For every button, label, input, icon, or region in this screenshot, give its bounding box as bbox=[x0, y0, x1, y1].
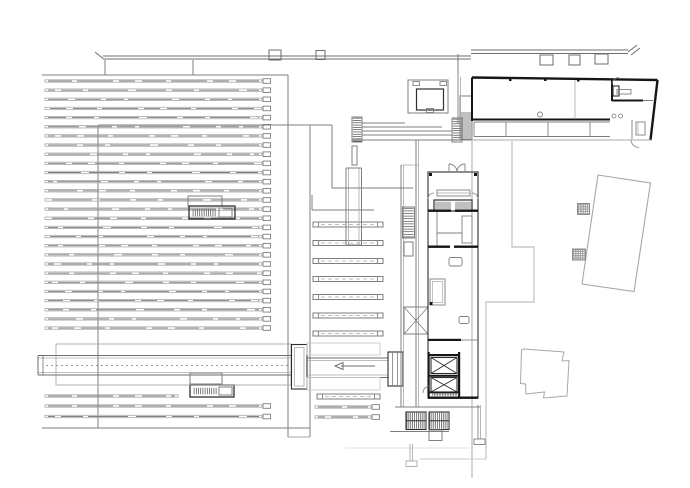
railway-track-end-bracket bbox=[263, 280, 271, 285]
railway-track-end-bracket bbox=[263, 289, 271, 294]
platform-bench-cap bbox=[313, 241, 319, 246]
column-marker bbox=[429, 173, 432, 176]
interior-wall bbox=[428, 339, 461, 341]
footbridge bbox=[38, 343, 403, 390]
canopy-edge-stepped bbox=[486, 141, 534, 459]
entrance-door-swing bbox=[449, 164, 457, 172]
railway-track-end-bracket bbox=[263, 207, 271, 212]
interior-wall bbox=[454, 246, 478, 248]
lamp-base bbox=[474, 439, 485, 445]
railway-track-end-bracket bbox=[263, 88, 271, 93]
platform-bench-cap bbox=[313, 313, 319, 318]
kiosk-fixture-inner bbox=[433, 282, 443, 303]
platform-bench-cap bbox=[313, 295, 319, 300]
core-wall bbox=[429, 354, 458, 356]
platform-bench-cap bbox=[313, 277, 319, 282]
railway-track-end-bracket bbox=[263, 152, 271, 157]
gallery-stair bbox=[403, 207, 415, 238]
warehouse-roof bbox=[582, 175, 651, 292]
south-stairs bbox=[390, 405, 485, 467]
entrance-door-swing bbox=[457, 164, 465, 172]
platform-bench-cap bbox=[313, 331, 319, 336]
column-marker bbox=[509, 79, 512, 82]
bench bbox=[459, 317, 469, 324]
terminal-building bbox=[395, 164, 480, 407]
railway-track-end-bracket bbox=[263, 106, 271, 111]
railway-track-end-bracket bbox=[263, 271, 271, 276]
platform-bench-cap bbox=[378, 331, 384, 336]
core-wall bbox=[429, 375, 458, 377]
railway-track-end-bracket bbox=[263, 262, 271, 267]
railway-track-end-bracket bbox=[263, 170, 271, 175]
railway-track-end-bracket bbox=[263, 225, 271, 230]
terminal-outline bbox=[428, 172, 478, 398]
platform-bench-cap bbox=[378, 277, 384, 282]
door-swing bbox=[472, 193, 478, 199]
railway-track-end-bracket bbox=[263, 97, 271, 102]
fence-tab bbox=[540, 55, 553, 65]
fence-tab bbox=[595, 54, 608, 64]
bridge-enclosure bbox=[56, 344, 291, 385]
fence-end-tick bbox=[95, 52, 103, 59]
railway-track-end-bracket bbox=[263, 161, 271, 166]
interior-wall bbox=[428, 246, 450, 248]
railway-track-end-bracket bbox=[263, 143, 271, 148]
gallery-fixture bbox=[404, 242, 413, 256]
wc-basin bbox=[612, 114, 616, 118]
kiosk-post bbox=[413, 82, 420, 86]
wc-fixture bbox=[613, 86, 619, 96]
column-marker bbox=[474, 173, 477, 176]
west-gallery bbox=[401, 140, 428, 407]
platform-bench-cap bbox=[317, 394, 323, 399]
hall-column bbox=[538, 112, 543, 117]
hall-wall-top bbox=[472, 78, 658, 81]
platform-edge-lower bbox=[307, 378, 380, 391]
platform-bench-cap bbox=[378, 259, 384, 264]
railway-track-end-bracket bbox=[263, 198, 271, 203]
boundary-fence bbox=[95, 45, 640, 77]
column-marker bbox=[430, 302, 433, 305]
railway-track-end-bracket bbox=[372, 405, 380, 410]
platform-bench-cap bbox=[313, 259, 319, 264]
house-footprint bbox=[521, 349, 570, 398]
fence-node bbox=[316, 51, 325, 60]
bridge-pylon-inner bbox=[295, 348, 305, 387]
kiosk-core bbox=[417, 89, 444, 110]
railway-track-end-bracket bbox=[263, 189, 271, 194]
fence-tab bbox=[569, 55, 580, 65]
outbuildings bbox=[521, 175, 651, 398]
railway-track-end-bracket bbox=[263, 317, 271, 322]
platform-bench-cap bbox=[378, 313, 384, 318]
lamp-base bbox=[406, 461, 417, 467]
railway-track-end-bracket bbox=[263, 179, 271, 184]
forecourt-kiosk bbox=[408, 77, 461, 123]
bridge-pylon bbox=[292, 345, 308, 390]
railway-track-end-bracket bbox=[263, 307, 271, 312]
platform-bench-cap bbox=[378, 222, 384, 227]
site-plan-drawing bbox=[0, 0, 690, 488]
entry-walkway bbox=[332, 96, 472, 188]
railway-track-end-bracket bbox=[263, 134, 271, 139]
railway-track-end-bracket bbox=[263, 115, 271, 120]
railway-track-end-bracket bbox=[263, 216, 271, 221]
core-wall bbox=[428, 352, 430, 397]
east-platform bbox=[312, 168, 383, 419]
station-hall bbox=[472, 78, 658, 148]
column-marker bbox=[544, 79, 547, 82]
wc-basin bbox=[619, 114, 623, 118]
stair-landing bbox=[219, 387, 232, 395]
interior-wall bbox=[428, 210, 451, 212]
drawing-sheet bbox=[0, 0, 690, 488]
railway-track-end-bracket bbox=[263, 414, 271, 419]
railway-track-end-bracket bbox=[372, 415, 380, 420]
railway-track-end-bracket bbox=[263, 253, 271, 258]
platform-bench-cap bbox=[375, 394, 381, 399]
bench bbox=[449, 258, 462, 267]
door-swing bbox=[428, 193, 434, 199]
railway-track-end-bracket bbox=[263, 234, 271, 239]
railway-track-end-bracket bbox=[263, 404, 271, 409]
wc-fixture bbox=[636, 122, 645, 135]
hall-wall-right bbox=[651, 80, 658, 140]
railway-track-end-bracket bbox=[263, 298, 271, 303]
platform-bench-cap bbox=[313, 222, 319, 227]
kiosk-post bbox=[440, 82, 447, 86]
exterior-wall bbox=[428, 397, 478, 399]
core-wall bbox=[458, 352, 460, 397]
track-field bbox=[42, 75, 332, 437]
railway-track-end-bracket bbox=[263, 243, 271, 248]
platform-bench-cap bbox=[378, 241, 384, 246]
platform-bench-cap bbox=[378, 295, 384, 300]
door-swing bbox=[631, 140, 639, 148]
railway-track-end-bracket bbox=[263, 326, 271, 331]
duct-column bbox=[462, 216, 472, 243]
forecourt-pier bbox=[352, 146, 357, 165]
platform-edge-upper bbox=[307, 343, 380, 355]
interior-wall bbox=[455, 210, 478, 212]
railway-track-end-bracket bbox=[263, 79, 271, 84]
column-marker bbox=[577, 79, 580, 82]
